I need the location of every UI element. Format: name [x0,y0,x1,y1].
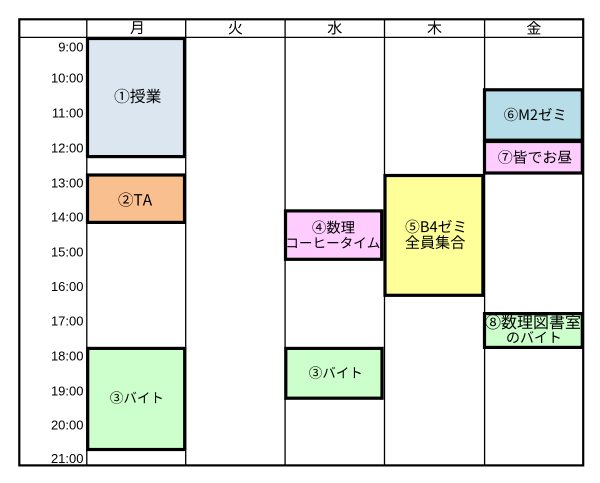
svg-text:12:00: 12:00 [51,141,84,156]
svg-text:17:00: 17:00 [51,314,84,329]
svg-text:18:00: 18:00 [51,349,84,364]
svg-text:15:00: 15:00 [51,245,84,260]
svg-text:21:00: 21:00 [51,451,84,466]
svg-text:9:00: 9:00 [58,40,83,55]
svg-text:20:00: 20:00 [51,417,84,432]
svg-text:13:00: 13:00 [51,175,84,190]
svg-text:14:00: 14:00 [51,210,84,225]
svg-text:19:00: 19:00 [51,384,84,399]
svg-text:16:00: 16:00 [51,279,84,294]
svg-text:11:00: 11:00 [52,105,84,120]
svg-text:10:00: 10:00 [51,71,84,86]
